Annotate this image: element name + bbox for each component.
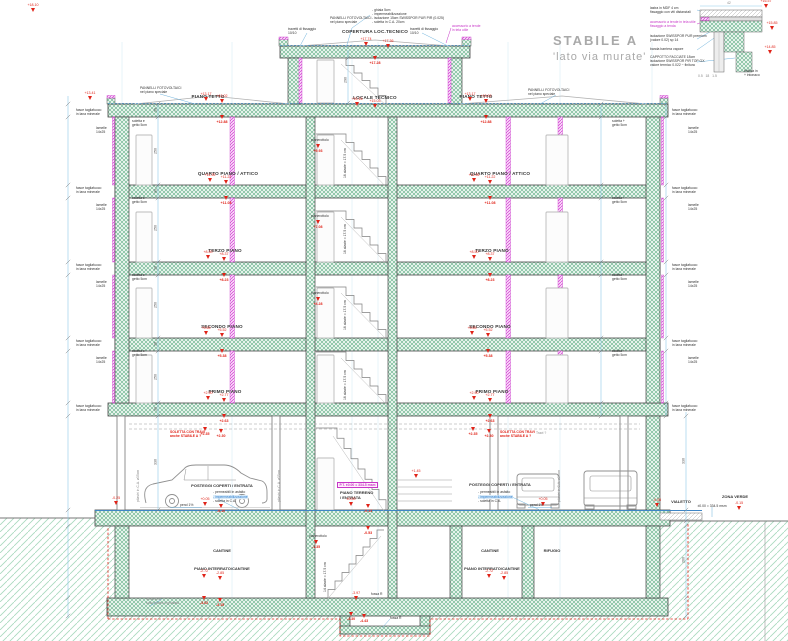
elevation-value: +0.05: [195, 497, 215, 501]
label-soletta-getto-right-4: soletta + getto 5cm: [612, 349, 627, 357]
label-fasce-left-1: fasce tagliafuoco in lana minerale: [76, 108, 101, 116]
elevation-triangle-icon: [373, 56, 377, 60]
elevation-triangle-icon: [206, 396, 210, 400]
elevation-value: +15.85: [762, 21, 782, 25]
label-buildup-garage-right-3: - soletta in C.A.: [478, 499, 501, 503]
label-detail-mdf: lastra in MDF 4 cm fissaggio con viti di…: [650, 6, 691, 14]
label-cantine-left: CANTINE: [213, 549, 231, 554]
elevation-value: +5.52: [478, 328, 498, 332]
elevation-value: +2.30: [479, 434, 499, 438]
elevation-value: +13.02: [212, 94, 232, 98]
elevation-value: +4.28: [308, 302, 328, 306]
elevation-triangle-icon: [88, 96, 92, 100]
elevation-value: +15.03: [365, 99, 385, 103]
elevation-triangle-icon: [470, 331, 474, 335]
elevation-value: +8.37: [214, 252, 234, 256]
elevation-triangle-icon: [484, 115, 488, 119]
elevation-value: +11.08: [480, 201, 500, 205]
title-subtitle: 'lato via murate': [553, 51, 646, 63]
label-fasce-left-5: fasce tagliafuoco in lana minerale: [76, 404, 101, 412]
label-vialetto: VIALETTO: [671, 500, 691, 505]
label-soletta-getto-left-1: soletta e getto 5cm: [132, 119, 147, 127]
svg-text:30: 30: [154, 266, 158, 270]
elevation-triangle-icon: [366, 504, 370, 508]
label-soletta-getto-right-2: soletta + getto 5cm: [612, 196, 627, 204]
elevation-triangle-icon: [222, 398, 226, 402]
label-fasce-right-2: fasce tagliafuoco in lana minerale: [672, 186, 697, 194]
elevation-triangle-icon: [203, 502, 207, 506]
elevation-value: -2.85: [494, 571, 514, 575]
elevation-triangle-icon: [488, 180, 492, 184]
elevation-value: +0.05: [533, 497, 553, 501]
label-alzate-int: 14 alzate = 17.5 cm: [323, 562, 327, 592]
elevation-triangle-icon: [488, 398, 492, 402]
elevation-triangle-icon: [770, 26, 774, 30]
elevation-triangle-icon: [349, 612, 353, 616]
label-detail-cappotto: CAPPOTTO FACCIATE 18cm isolazione SWISSP…: [650, 55, 704, 67]
title-building: STABILE A: [553, 33, 646, 48]
elevation-triangle-icon: [488, 273, 492, 277]
label-buildup-garage-right-1: - permeabili in asfalto: [478, 490, 510, 494]
svg-text:30: 30: [154, 108, 158, 112]
label-fasce-left-2: fasce tagliafuoco in lana minerale: [76, 186, 101, 194]
label-pannelli-right: PANNELLI FOTOVOLTAICI nel piano speciale: [528, 88, 569, 96]
elevation-value: +5.52: [212, 328, 232, 332]
label-fossa-1: fossa R: [371, 592, 383, 596]
elevation-triangle-icon: [472, 255, 476, 259]
svg-text:290: 290: [344, 77, 348, 83]
label-pilastri-3: pilastri in C.A. ø35cm: [557, 470, 561, 502]
elevation-triangle-icon: [366, 526, 370, 530]
elevation-value: +11.22: [480, 175, 500, 179]
elevation-triangle-icon: [486, 333, 490, 337]
elevation-value: +11.22: [216, 175, 236, 179]
label-soletta-getto-left-2: soletta e getto 5cm: [132, 196, 147, 204]
detail-parapet: [700, 6, 762, 72]
elevation-value: +2.30: [211, 434, 231, 438]
elevation-triangle-icon: [472, 178, 476, 182]
label-detail-vapore: banda barriera vapore: [650, 47, 683, 51]
elevation-value: +14.85: [760, 45, 780, 49]
label-buildup-garage-left-3: - soletta in C.A.: [213, 499, 236, 503]
elevation-triangle-icon: [486, 349, 490, 353]
label-pianerottolo-3: pianerottolo: [311, 291, 329, 295]
elevation-triangle-icon: [218, 598, 222, 602]
drawing-title: STABILE A 'lato via murate': [553, 33, 646, 63]
elevation-value: +17.36: [378, 39, 398, 43]
label-fossa-2: fossa R: [390, 616, 402, 620]
label-detail-isolazione: isolazione SWISSPOR PUR premium (valore …: [650, 34, 707, 42]
elevation-triangle-icon: [541, 502, 545, 506]
elevation-value: +8.23: [214, 278, 234, 282]
elevation-triangle-icon: [219, 504, 223, 508]
label-buildup-garage-left-2: - impermeabilizzazione: [213, 495, 248, 499]
elevation-triangle-icon: [204, 97, 208, 101]
label-alzate-1: 16 alzate = 17.5 cm: [343, 148, 347, 178]
svg-text:250: 250: [154, 225, 158, 231]
label-alzate-4: 16 alzate = 17.5 cm: [343, 370, 347, 400]
elevation-value: -0.53: [358, 531, 378, 535]
elevation-triangle-icon: [488, 196, 492, 200]
elevation-triangle-icon: [354, 596, 358, 600]
label-pianerottolo-1: pianerottolo: [311, 138, 329, 142]
label-detail-dim-bottom: 0.5 18 1.5: [698, 74, 717, 78]
elevation-value: +2.77: [480, 393, 500, 397]
elevation-triangle-icon: [471, 427, 475, 431]
label-fasce-right-5: fasce tagliafuoco in lana minerale: [672, 404, 697, 412]
elevation-value: +11.08: [216, 201, 236, 205]
label-detail-accessorio: accessorio a tende in tela utile fissagg…: [650, 20, 696, 28]
elevation-value: -0.15: [729, 501, 749, 505]
label-lamelle-right-2: lamelle 14x25: [688, 203, 699, 211]
elevation-value: ±0.00: [341, 497, 361, 501]
elevation-triangle-icon: [373, 104, 377, 108]
elevation-triangle-icon: [502, 576, 506, 580]
elevation-triangle-icon: [203, 427, 207, 431]
elevation-triangle-icon: [472, 396, 476, 400]
svg-text:250: 250: [154, 302, 158, 308]
svg-text:250: 250: [154, 148, 158, 154]
label-zona-verde: ZONA VERDE: [722, 495, 748, 500]
elevation-triangle-icon: [222, 273, 226, 277]
elevation-value: -1.35: [306, 545, 326, 549]
label-soletta-getto-left-4: soletta e getto 5cm: [132, 349, 147, 357]
label-pilastri-2: pilastri in C.A. ø35cm: [277, 470, 281, 502]
elevation-triangle-icon: [220, 333, 224, 337]
label-soletta-getto-left-3: soletta e getto 5cm: [132, 273, 147, 281]
label-lamelle-left-3: lamelle 14x25: [96, 280, 107, 288]
elevation-value: -0.05: [647, 498, 667, 502]
label-pianerottolo-int: pianerottolo: [309, 534, 327, 538]
elevation-triangle-icon: [364, 42, 368, 46]
label-lamelle-right-4: lamelle 14x25: [688, 356, 699, 364]
label-pilastri-1: pilastri in C.A. ø35cm: [136, 470, 140, 502]
label-travi-q: Travi ?: [536, 431, 546, 435]
label-fasce-right-3: fasce tagliafuoco in lana minerale: [672, 263, 697, 271]
elevation-triangle-icon: [737, 506, 741, 510]
svg-text:330: 330: [682, 458, 686, 464]
label-platea-note: isolazione sotto platea inghiaiata: [146, 597, 179, 605]
label-pt-quota: P.T. ±0.00 = 334.5 msm: [337, 482, 378, 488]
svg-text:30: 30: [154, 342, 158, 346]
elevation-triangle-icon: [220, 115, 224, 119]
elevation-value: -0.25: [106, 496, 126, 500]
elevation-value: -0.10: [211, 509, 231, 513]
svg-text:250: 250: [154, 374, 158, 380]
label-detail-dim-top: 42: [727, 1, 731, 5]
elevation-triangle-icon: [316, 297, 320, 301]
label-fasce-right-1: fasce tagliafuoco in lana minerale: [672, 108, 697, 116]
elevation-triangle-icon: [316, 220, 320, 224]
label-pend-left: pend 1%: [180, 503, 193, 507]
elevation-triangle-icon: [764, 4, 768, 8]
elevation-triangle-icon: [220, 99, 224, 103]
elevation-triangle-icon: [316, 144, 320, 148]
svg-text:260: 260: [682, 557, 686, 563]
elevation-value: +5.38: [478, 354, 498, 358]
elevation-triangle-icon: [208, 178, 212, 182]
elevation-value: +7.08: [308, 225, 328, 229]
elevation-triangle-icon: [218, 576, 222, 580]
elevation-value: +8.23: [480, 278, 500, 282]
elevation-triangle-icon: [222, 257, 226, 261]
label-cantine-right: CANTINE: [481, 549, 499, 554]
elevation-triangle-icon: [362, 614, 366, 618]
label-lamelle-right-3: lamelle 14x25: [688, 280, 699, 288]
label-pannelli-left: PANNELLI FOTOVOLTAICI nel piano speciale: [140, 86, 181, 94]
elevation-value: +13.41: [80, 91, 100, 95]
floor-slabs: [95, 46, 670, 526]
vialetto-slab: [660, 513, 702, 520]
label-buildup-garage-right-2: - impermeabilizzazione: [478, 495, 513, 499]
label-zona-verde-quota: ±0.00 = 334.5 msm: [697, 504, 726, 508]
label-soletta-travi-right: SOLETTA CON TRAVI anche STABILE A ?: [500, 430, 535, 438]
elevation-value: +13.02: [476, 94, 496, 98]
elevation-value: -4.43: [354, 619, 374, 623]
elevation-value: -0.13: [358, 509, 378, 513]
elevation-triangle-icon: [488, 257, 492, 261]
elevation-triangle-icon: [31, 8, 35, 12]
label-pannelli-top: PANNELLI FOTOVOLTAICI nel piano speciale: [330, 16, 371, 24]
elevation-triangle-icon: [349, 502, 353, 506]
label-roof-buildup: - ghiaia 5cm - impermeabilizzazione - is…: [372, 8, 444, 24]
elevation-triangle-icon: [114, 501, 118, 505]
elevation-triangle-icon: [224, 180, 228, 184]
label-rifugio: RIFUGIO: [544, 549, 561, 554]
label-soletta-getto-right-3: soletta + getto 5cm: [612, 273, 627, 281]
elevation-triangle-icon: [202, 574, 206, 578]
elevation-value: +15.16: [347, 97, 367, 101]
label-copertura: COPERTURA LOC.TECNICO: [342, 29, 408, 35]
label-accessorio-top: accessorio a tende in tela utile: [452, 24, 480, 32]
elevation-triangle-icon: [487, 574, 491, 578]
label-detail-finitura: finitura in + intonaco: [744, 69, 760, 77]
elevation-triangle-icon: [222, 414, 226, 418]
elevation-value: -2.85: [210, 571, 230, 575]
elevation-triangle-icon: [488, 414, 492, 418]
label-travetti-left: travetti di fissaggio 10/10: [288, 27, 316, 35]
elevation-triangle-icon: [220, 349, 224, 353]
elevation-triangle-icon: [355, 102, 359, 106]
label-buildup-garage-left-1: - permeabili in asfalto: [213, 490, 245, 494]
elevation-triangle-icon: [219, 429, 223, 433]
elevation-triangle-icon: [468, 97, 472, 101]
label-lamelle-left-4: lamelle 14x25: [96, 356, 107, 364]
label-fasce-left-3: fasce tagliafuoco in lana minerale: [76, 263, 101, 271]
label-alzate-3: 16 alzate = 17.5 cm: [343, 300, 347, 330]
label-fasce-left-4: fasce tagliafuoco in lana minerale: [76, 339, 101, 347]
elevation-value: +2.77: [214, 393, 234, 397]
label-soletta-getto-right-1: soletta + getto 5cm: [612, 119, 627, 127]
elevation-triangle-icon: [386, 44, 390, 48]
svg-text:30: 30: [154, 189, 158, 193]
label-lamelle-right-1: lamelle 14x25: [688, 126, 699, 134]
elevation-value: +18.10: [23, 3, 43, 7]
elevation-value: +17.28: [365, 61, 385, 65]
elevation-value: +8.37: [480, 252, 500, 256]
label-fasce-right-4: fasce tagliafuoco in lana minerale: [672, 339, 697, 347]
elevation-triangle-icon: [768, 50, 772, 54]
elevation-triangle-icon: [655, 503, 659, 507]
elevation-triangle-icon: [202, 596, 206, 600]
elevation-triangle-icon: [414, 474, 418, 478]
elevation-triangle-icon: [224, 196, 228, 200]
elevation-triangle-icon: [484, 99, 488, 103]
label-lamelle-left-2: lamelle 14x25: [96, 203, 107, 211]
label-lamelle-left-1: lamelle 14x25: [96, 126, 107, 134]
drawing-canvas: 3025030250302503025030330330260290 STABI…: [0, 0, 788, 641]
label-pianerottolo-2: pianerottolo: [311, 214, 329, 218]
elevation-value: +16.57: [756, 0, 776, 3]
elevation-value: +9.93: [308, 149, 328, 153]
label-posteggi-left: POSTEGGI COPERTI / ENTRATA: [191, 484, 253, 489]
elevation-triangle-icon: [314, 540, 318, 544]
elevation-value: +1.45: [406, 469, 426, 473]
elevation-triangle-icon: [487, 429, 491, 433]
elevation-triangle-icon: [206, 255, 210, 259]
svg-text:330: 330: [154, 459, 158, 465]
elevation-value: +2.63: [480, 419, 500, 423]
elevation-value: +2.63: [214, 419, 234, 423]
elevation-value: +5.38: [212, 354, 232, 358]
label-posteggi-right: POSTEGGI COPERTI / ENTRATA: [469, 483, 531, 488]
elevation-value: +17.74: [356, 37, 376, 41]
label-travetti-right: travetti di fissaggio 10/10: [410, 27, 438, 35]
svg-text:30: 30: [154, 407, 158, 411]
elevation-value: -3.15: [210, 603, 230, 607]
elevation-triangle-icon: [204, 331, 208, 335]
elevation-value: -3.97: [346, 591, 366, 595]
elevation-value: +12.88: [212, 120, 232, 124]
label-alzate-2: 16 alzate = 17.5 cm: [343, 224, 347, 254]
elevation-value: +12.88: [476, 120, 496, 124]
